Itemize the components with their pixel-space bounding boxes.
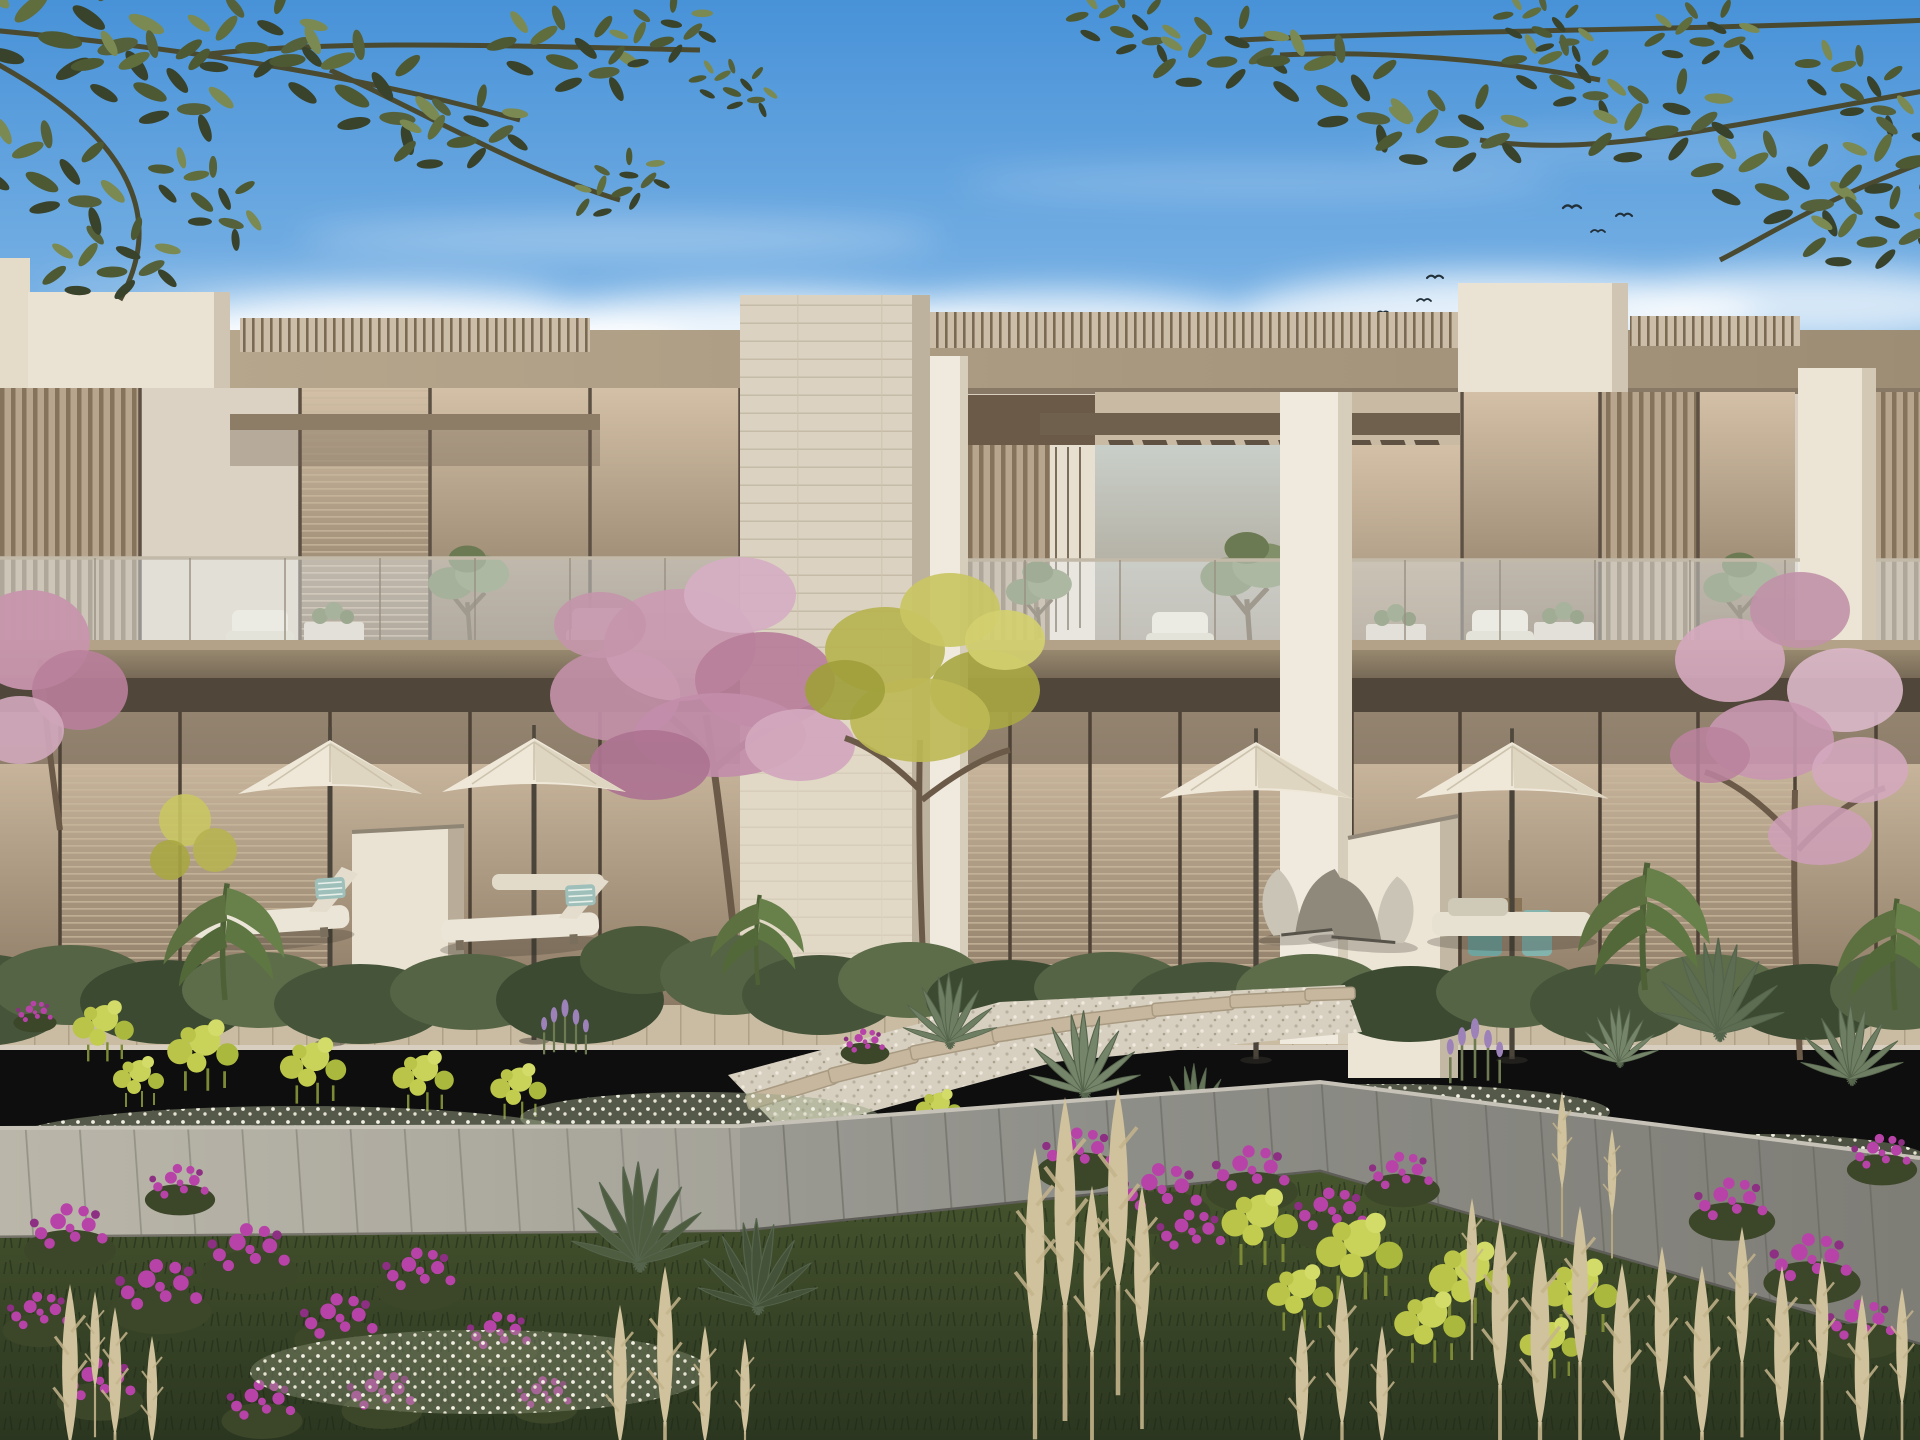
- white-drift-bottom-dots: [250, 1330, 710, 1414]
- roof-louvre-strip-left: [240, 318, 590, 352]
- scene-svg: [0, 0, 1920, 1440]
- pergola-beam: [1040, 413, 1460, 435]
- render-canvas: [0, 0, 1920, 1440]
- balcony-beam: [230, 414, 600, 430]
- roof-louvre-strip-center: [850, 312, 1462, 348]
- roof-louvre-strip-right: [1630, 316, 1800, 346]
